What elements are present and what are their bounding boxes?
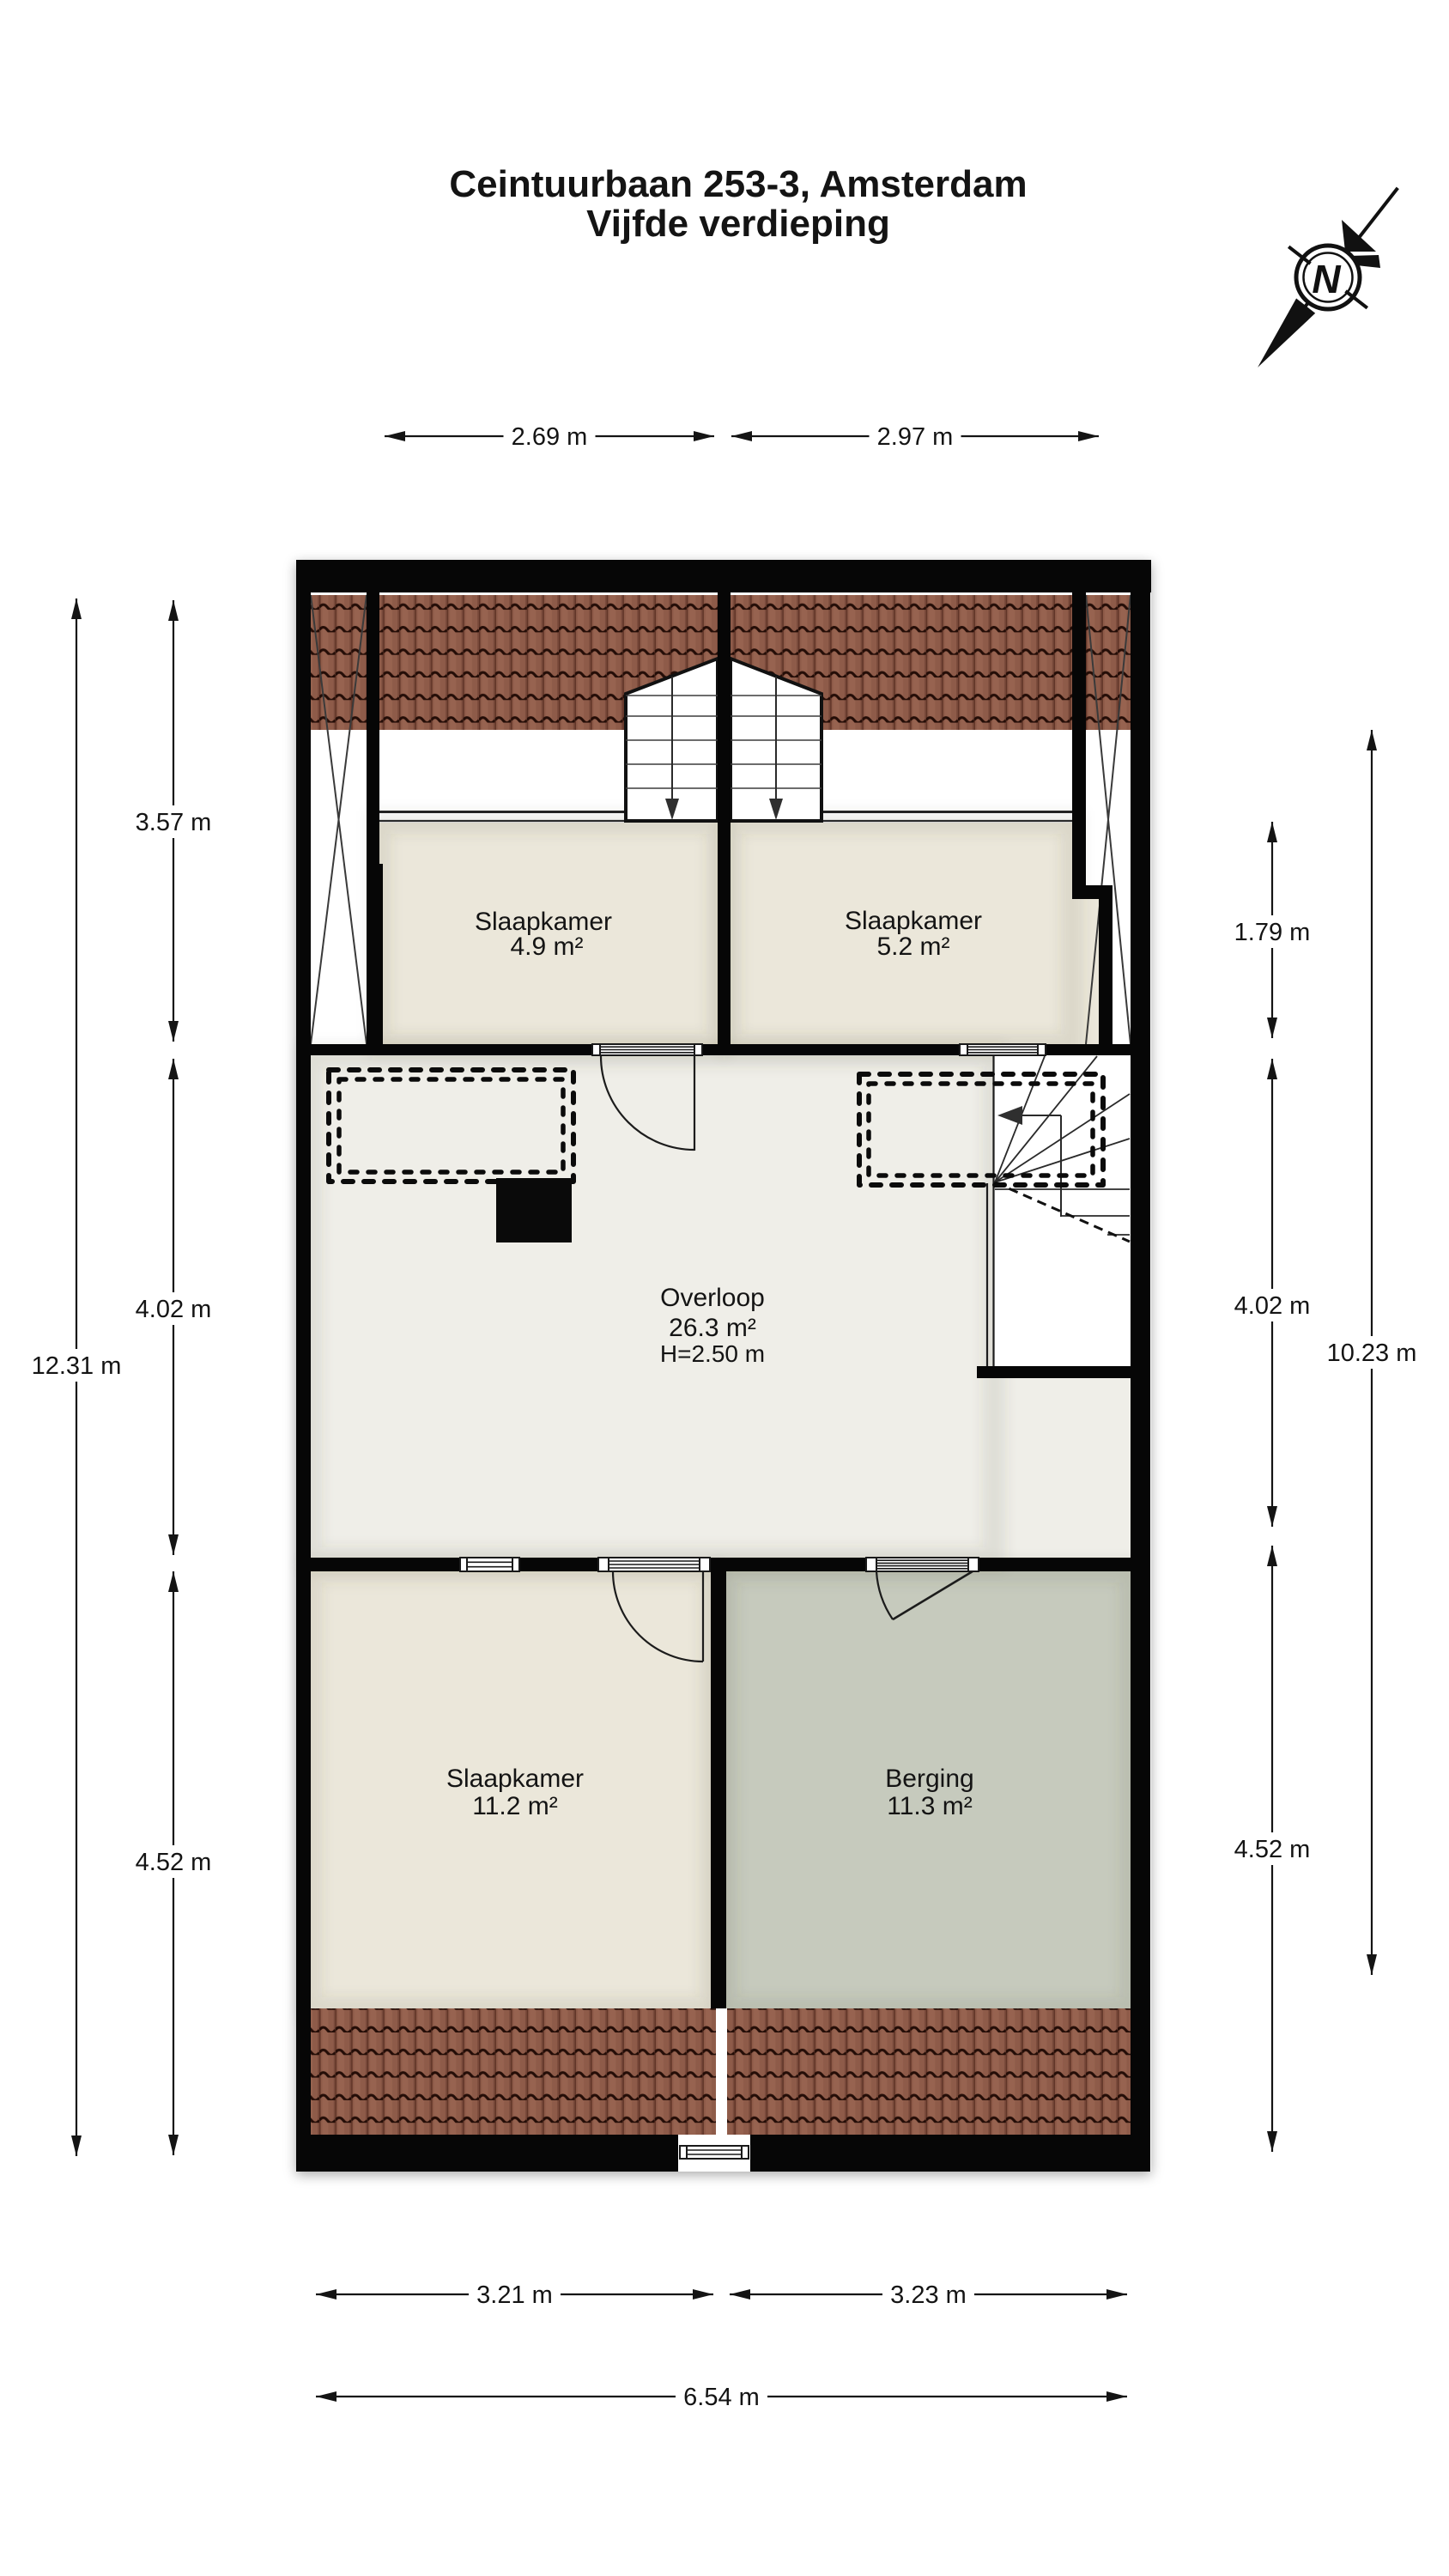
svg-text:5.2 m²: 5.2 m² <box>876 933 949 961</box>
svg-text:11.3 m²: 11.3 m² <box>887 1792 972 1820</box>
svg-text:Slaapkamer: Slaapkamer <box>446 1765 584 1793</box>
svg-text:Vijfde verdieping: Vijfde verdieping <box>586 203 890 245</box>
svg-text:4.52 m: 4.52 m <box>1234 1836 1311 1863</box>
svg-text:Ceintuurbaan 253-3, Amsterdam: Ceintuurbaan 253-3, Amsterdam <box>449 163 1027 205</box>
svg-text:4.9 m²: 4.9 m² <box>510 933 583 961</box>
svg-text:26.3 m²: 26.3 m² <box>669 1314 756 1342</box>
svg-text:2.69 m: 2.69 m <box>512 423 588 451</box>
svg-text:11.2 m²: 11.2 m² <box>472 1792 557 1820</box>
svg-text:2.97 m: 2.97 m <box>877 423 954 451</box>
svg-text:3.23 m: 3.23 m <box>890 2281 967 2309</box>
svg-text:12.31 m: 12.31 m <box>32 1352 122 1380</box>
svg-text:4.02 m: 4.02 m <box>136 1296 212 1323</box>
svg-text:H=2.50 m: H=2.50 m <box>660 1340 765 1367</box>
svg-text:1.79 m: 1.79 m <box>1234 919 1311 946</box>
svg-text:Berging: Berging <box>885 1765 973 1793</box>
svg-text:3.21 m: 3.21 m <box>476 2281 553 2309</box>
svg-text:10.23 m: 10.23 m <box>1327 1340 1417 1367</box>
svg-text:4.52 m: 4.52 m <box>136 1849 212 1876</box>
svg-text:3.57 m: 3.57 m <box>136 809 212 836</box>
svg-text:Slaapkamer: Slaapkamer <box>845 907 982 935</box>
svg-text:4.02 m: 4.02 m <box>1234 1292 1311 1320</box>
svg-text:N: N <box>1312 257 1341 301</box>
svg-text:Overloop: Overloop <box>660 1284 765 1312</box>
svg-text:6.54 m: 6.54 m <box>683 2384 760 2411</box>
